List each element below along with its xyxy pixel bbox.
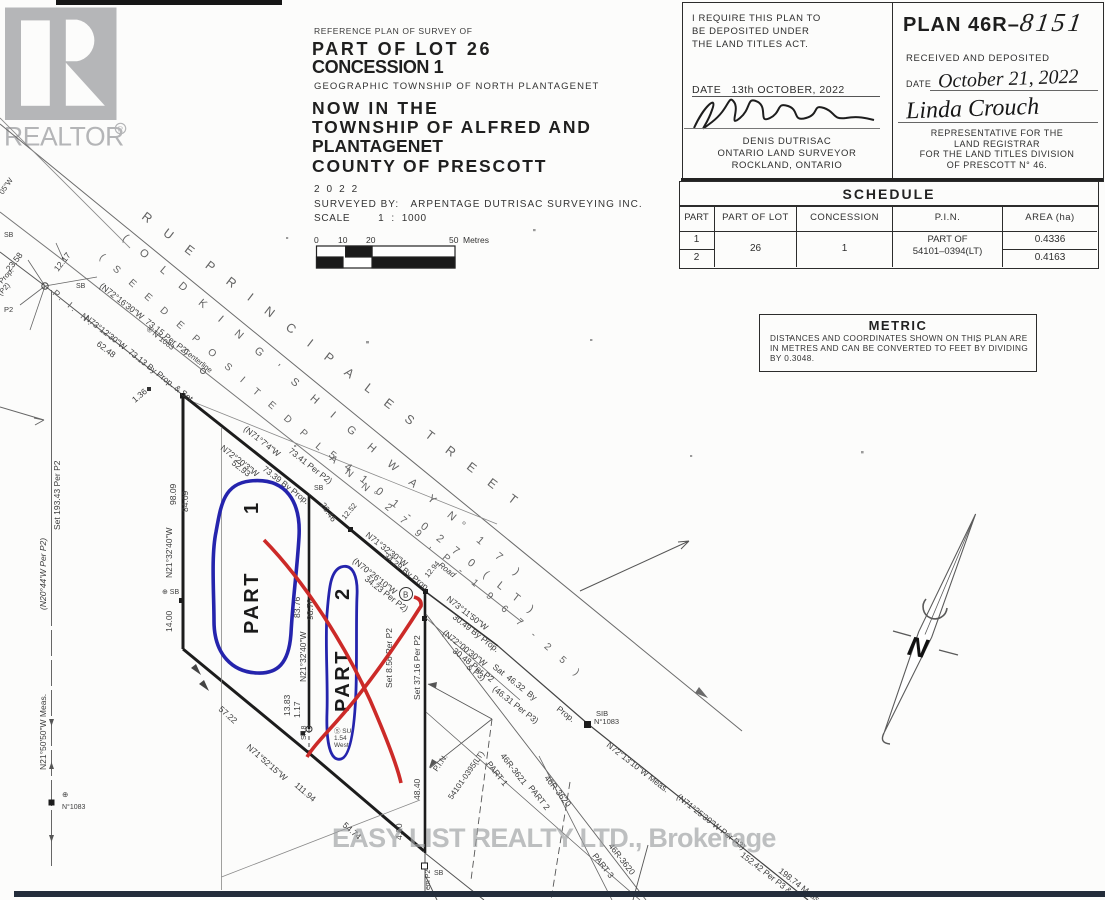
svg-text:SB: SB — [76, 283, 86, 290]
svg-text:S.18: S.18 — [301, 725, 308, 740]
svg-text:Metres: Metres — [463, 235, 489, 245]
svg-text:'05"W: '05"W — [0, 175, 15, 197]
svg-text:1.17: 1.17 — [292, 701, 302, 718]
svg-text:PART: PART — [241, 571, 263, 634]
svg-text:P.I.N.: P.I.N. — [431, 752, 449, 773]
svg-text:13.83: 13.83 — [282, 694, 292, 716]
svg-text:Set 193.43 Per P2: Set 193.43 Per P2 — [52, 460, 62, 530]
svg-text:14.00: 14.00 — [164, 610, 174, 632]
svg-text:⊕ SB: ⊕ SB — [162, 589, 179, 596]
svg-text:N71°52'15"W: N71°52'15"W — [245, 742, 290, 783]
svg-text:em P2: em P2 — [425, 870, 432, 890]
svg-text:(N20°44'W Per P2): (N20°44'W Per P2) — [38, 538, 48, 610]
svg-text:Ⓢ SU: Ⓢ SU — [334, 727, 352, 735]
svg-text:73.39 By Prop.: 73.39 By Prop. — [261, 464, 311, 507]
svg-text:N21°50'50"W Meas.: N21°50'50"W Meas. — [38, 694, 48, 770]
svg-text:50: 50 — [449, 235, 459, 245]
svg-text:0: 0 — [314, 235, 319, 245]
svg-text:SB: SB — [4, 232, 14, 239]
svg-text:20.46: 20.46 — [318, 500, 339, 523]
svg-text:N°1083: N°1083 — [594, 717, 619, 726]
svg-text:SB: SB — [434, 870, 444, 877]
svg-text:1: 1 — [241, 503, 263, 514]
svg-text:N21°32'40"W: N21°32'40"W — [298, 631, 308, 682]
svg-text:84.09: 84.09 — [180, 490, 190, 512]
svg-text:( O L D K I N G ' S H I G: ( O L D K I N G ' S H I G H W A Y N° 1 7… — [120, 232, 523, 579]
svg-text:(N72°16'30"W 73.15 Per P2): (N72°16'30"W 73.15 Per P2) — [98, 281, 191, 357]
svg-text:P2: P2 — [4, 305, 13, 314]
svg-text:⊕: ⊕ — [62, 790, 68, 799]
svg-text:Set 37.16 Per P2: Set 37.16 Per P2 — [412, 635, 422, 700]
svg-text:98.09: 98.09 — [168, 483, 178, 505]
svg-text:N72°13'10"W Meas.: N72°13'10"W Meas. — [605, 740, 671, 795]
svg-text:PART 2: PART 2 — [526, 783, 552, 812]
svg-text:1.54: 1.54 — [334, 735, 347, 742]
svg-text:Prop.: Prop. — [555, 704, 577, 724]
svg-text:B: B — [403, 591, 408, 600]
svg-text:1.36: 1.36 — [130, 386, 149, 404]
svg-text:N21°32'40"W: N21°32'40"W — [164, 527, 174, 578]
svg-text:N°1083: N°1083 — [62, 803, 86, 811]
svg-text:48.40: 48.40 — [412, 778, 422, 800]
svg-text:54101-0395(LT): 54101-0395(LT) — [446, 749, 486, 801]
svg-text:West: West — [334, 742, 349, 749]
svg-text:2: 2 — [332, 589, 354, 600]
svg-text:57.22: 57.22 — [217, 704, 240, 726]
svg-text:SB: SB — [314, 485, 324, 492]
svg-text:20: 20 — [366, 235, 376, 245]
svg-text:10: 10 — [338, 235, 348, 245]
svg-text:111.94: 111.94 — [293, 780, 318, 804]
svg-text:12.52: 12.52 — [340, 501, 359, 521]
svg-text:12.94: 12.94 — [423, 559, 442, 579]
